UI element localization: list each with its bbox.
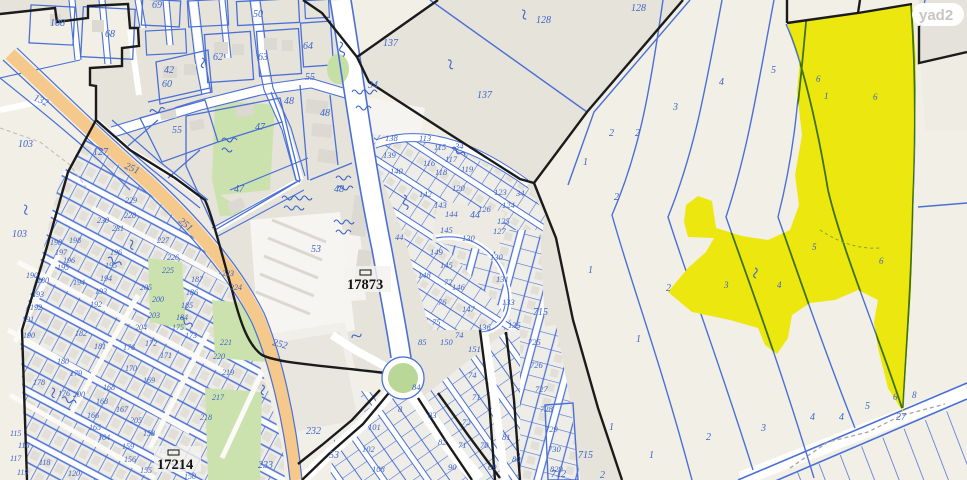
svg-text:55: 55	[172, 125, 182, 136]
svg-text:142: 142	[419, 189, 433, 199]
svg-text:176: 176	[123, 343, 135, 352]
svg-text:71: 71	[472, 392, 481, 402]
svg-text:148: 148	[418, 270, 432, 280]
svg-text:6: 6	[893, 392, 898, 402]
svg-text:1: 1	[649, 450, 654, 461]
svg-text:173: 173	[185, 331, 197, 340]
svg-text:181: 181	[94, 342, 106, 351]
svg-text:145: 145	[440, 225, 453, 235]
svg-text:205: 205	[140, 283, 152, 292]
svg-text:200: 200	[73, 390, 85, 399]
svg-text:108: 108	[50, 18, 65, 29]
svg-text:179: 179	[70, 369, 82, 378]
svg-text:3: 3	[672, 102, 678, 113]
svg-text:715: 715	[578, 450, 593, 461]
svg-text:5: 5	[812, 242, 817, 252]
svg-text:72: 72	[462, 417, 471, 427]
svg-text:146: 146	[452, 282, 466, 292]
svg-text:2: 2	[600, 470, 605, 480]
svg-text:185: 185	[181, 301, 193, 310]
svg-text:198: 198	[69, 236, 81, 245]
svg-text:75: 75	[432, 317, 441, 327]
svg-text:17214: 17214	[157, 457, 193, 473]
svg-text:115: 115	[434, 142, 446, 152]
svg-text:125: 125	[497, 216, 510, 226]
svg-text:229: 229	[125, 196, 137, 205]
svg-text:5: 5	[865, 401, 870, 412]
svg-text:190: 190	[23, 331, 35, 340]
svg-text:127: 127	[93, 147, 109, 158]
svg-text:200: 200	[152, 295, 164, 304]
svg-text:171: 171	[160, 351, 172, 360]
svg-text:1: 1	[609, 422, 614, 433]
svg-text:48: 48	[284, 96, 294, 107]
svg-text:70: 70	[480, 440, 489, 450]
svg-text:119: 119	[461, 164, 474, 174]
svg-text:191: 191	[22, 315, 34, 324]
svg-text:113: 113	[419, 133, 431, 143]
svg-text:120: 120	[452, 183, 466, 193]
svg-text:726: 726	[530, 360, 544, 370]
svg-text:5: 5	[771, 65, 776, 76]
svg-text:103: 103	[18, 139, 33, 150]
svg-text:170: 170	[125, 364, 137, 373]
svg-text:169: 169	[143, 376, 155, 385]
svg-text:2: 2	[666, 283, 671, 294]
svg-text:186: 186	[186, 288, 198, 297]
svg-text:231: 231	[112, 224, 124, 233]
svg-text:3: 3	[723, 280, 729, 290]
svg-text:829: 829	[550, 464, 564, 474]
svg-text:127: 127	[493, 226, 507, 236]
svg-text:34: 34	[515, 188, 525, 198]
svg-text:4: 4	[777, 280, 782, 290]
svg-text:2: 2	[609, 128, 614, 139]
svg-text:6: 6	[879, 256, 884, 266]
svg-text:1: 1	[824, 91, 829, 101]
svg-text:133: 133	[502, 297, 515, 307]
svg-text:2: 2	[614, 192, 619, 203]
svg-text:135: 135	[508, 320, 521, 330]
svg-text:119: 119	[17, 468, 28, 477]
svg-text:103: 103	[12, 229, 27, 240]
svg-text:166: 166	[87, 411, 99, 420]
svg-text:4: 4	[719, 77, 724, 88]
svg-text:90: 90	[448, 462, 457, 472]
svg-text:727: 727	[535, 384, 549, 394]
svg-text:182: 182	[75, 329, 87, 338]
svg-text:1: 1	[588, 265, 593, 276]
svg-text:1: 1	[636, 334, 641, 345]
svg-text:158: 158	[143, 429, 155, 438]
svg-text:178: 178	[33, 378, 45, 387]
svg-text:6: 6	[816, 74, 821, 84]
svg-text:195: 195	[105, 261, 117, 270]
svg-text:34: 34	[454, 141, 464, 151]
svg-text:124: 124	[502, 200, 516, 210]
svg-text:205: 205	[130, 416, 142, 425]
svg-text:151: 151	[468, 344, 481, 354]
svg-text:2: 2	[706, 432, 711, 443]
svg-text:101: 101	[368, 422, 381, 432]
svg-text:159: 159	[122, 442, 134, 451]
svg-text:117: 117	[10, 454, 22, 463]
svg-text:164: 164	[98, 433, 110, 442]
svg-text:128: 128	[631, 3, 646, 14]
svg-text:34: 34	[367, 80, 378, 91]
svg-text:175: 175	[172, 323, 184, 332]
svg-text:68: 68	[105, 29, 115, 40]
svg-text:130: 130	[490, 252, 504, 262]
svg-text:85: 85	[418, 337, 427, 347]
svg-text:217: 217	[212, 393, 225, 402]
svg-text:172: 172	[145, 339, 157, 348]
svg-text:8: 8	[912, 390, 917, 400]
svg-text:168: 168	[96, 397, 108, 406]
svg-text:74: 74	[455, 330, 464, 340]
svg-text:83: 83	[428, 410, 437, 420]
svg-text:193: 193	[32, 290, 44, 299]
svg-text:63: 63	[258, 52, 268, 63]
svg-text:225: 225	[162, 266, 174, 275]
svg-text:187: 187	[191, 275, 204, 284]
svg-text:144: 144	[445, 209, 459, 219]
svg-text:76: 76	[438, 297, 447, 307]
svg-text:155: 155	[140, 466, 152, 475]
svg-text:223: 223	[222, 269, 234, 278]
svg-text:729: 729	[545, 424, 559, 434]
svg-text:80: 80	[512, 454, 521, 464]
svg-text:219: 219	[222, 368, 234, 377]
svg-text:167: 167	[116, 405, 129, 414]
svg-text:156: 156	[124, 455, 136, 464]
svg-text:145: 145	[440, 260, 453, 270]
svg-text:220: 220	[213, 352, 225, 361]
svg-text:192: 192	[90, 300, 102, 309]
svg-text:116: 116	[423, 158, 436, 168]
svg-text:yad2: yad2	[919, 7, 953, 24]
svg-text:115: 115	[10, 429, 21, 438]
svg-text:55: 55	[305, 72, 315, 83]
svg-text:108: 108	[372, 464, 386, 474]
svg-text:230: 230	[97, 216, 109, 225]
svg-text:730: 730	[548, 444, 562, 454]
svg-text:149: 149	[430, 247, 444, 257]
svg-text:198: 198	[50, 238, 62, 247]
svg-text:130: 130	[462, 233, 476, 243]
svg-text:232: 232	[306, 426, 321, 437]
svg-text:150: 150	[184, 472, 196, 480]
svg-text:140: 140	[390, 166, 404, 176]
svg-text:50: 50	[253, 9, 263, 20]
svg-text:42: 42	[164, 65, 174, 76]
svg-text:227: 227	[157, 236, 170, 245]
svg-text:138: 138	[385, 133, 399, 143]
svg-text:48: 48	[334, 184, 344, 195]
svg-text:126: 126	[478, 204, 492, 214]
svg-text:47: 47	[234, 184, 245, 195]
svg-text:60: 60	[162, 79, 172, 90]
svg-text:53: 53	[311, 244, 321, 255]
svg-text:139: 139	[383, 150, 397, 160]
svg-text:224: 224	[230, 283, 242, 292]
svg-text:69: 69	[152, 0, 162, 11]
svg-text:150: 150	[440, 337, 454, 347]
svg-text:137: 137	[477, 90, 493, 101]
svg-text:82: 82	[438, 437, 447, 447]
svg-text:180: 180	[37, 276, 49, 285]
svg-text:27: 27	[896, 412, 907, 423]
svg-text:1: 1	[583, 157, 588, 168]
svg-text:226: 226	[167, 253, 179, 262]
svg-text:4: 4	[810, 412, 815, 423]
svg-text:116: 116	[18, 441, 29, 450]
svg-text:131: 131	[496, 274, 509, 284]
svg-text:48: 48	[320, 108, 330, 119]
svg-text:3: 3	[760, 423, 766, 434]
svg-text:6: 6	[873, 92, 878, 102]
svg-text:193: 193	[95, 287, 107, 296]
svg-text:218: 218	[200, 413, 212, 422]
svg-text:2: 2	[635, 128, 640, 139]
svg-text:123: 123	[494, 187, 507, 197]
svg-text:128: 128	[536, 15, 551, 26]
svg-text:117: 117	[445, 154, 458, 164]
svg-text:81: 81	[502, 432, 511, 442]
svg-text:17873: 17873	[347, 277, 383, 293]
svg-text:44: 44	[395, 232, 404, 242]
svg-text:180: 180	[57, 357, 69, 366]
svg-text:228: 228	[124, 211, 136, 220]
svg-text:102: 102	[362, 444, 376, 454]
svg-text:221: 221	[220, 338, 232, 347]
svg-text:165: 165	[89, 423, 101, 432]
svg-text:728: 728	[540, 404, 554, 414]
svg-text:147: 147	[462, 304, 476, 314]
svg-text:71: 71	[458, 440, 467, 450]
svg-text:136: 136	[478, 322, 492, 332]
svg-text:84: 84	[412, 382, 421, 392]
svg-text:4: 4	[839, 412, 844, 423]
svg-text:192: 192	[30, 303, 42, 312]
svg-text:62: 62	[213, 52, 223, 63]
svg-text:203: 203	[148, 311, 160, 320]
svg-text:195: 195	[57, 263, 69, 272]
svg-text:118: 118	[435, 167, 448, 177]
svg-text:47: 47	[255, 122, 266, 133]
svg-text:64: 64	[303, 41, 313, 52]
svg-text:118: 118	[39, 458, 50, 467]
svg-text:120: 120	[68, 469, 80, 478]
svg-text:168: 168	[103, 383, 115, 392]
svg-text:194: 194	[73, 278, 85, 287]
svg-text:69: 69	[488, 462, 497, 472]
svg-text:715: 715	[533, 307, 548, 318]
svg-text:194: 194	[100, 274, 112, 283]
svg-text:74: 74	[468, 370, 477, 380]
svg-text:204: 204	[135, 323, 147, 332]
svg-text:53: 53	[329, 450, 339, 461]
svg-text:725: 725	[528, 337, 541, 347]
svg-text:72: 72	[444, 277, 453, 287]
svg-text:233: 233	[258, 460, 273, 471]
svg-text:196: 196	[110, 248, 122, 257]
svg-text:137: 137	[383, 38, 399, 49]
